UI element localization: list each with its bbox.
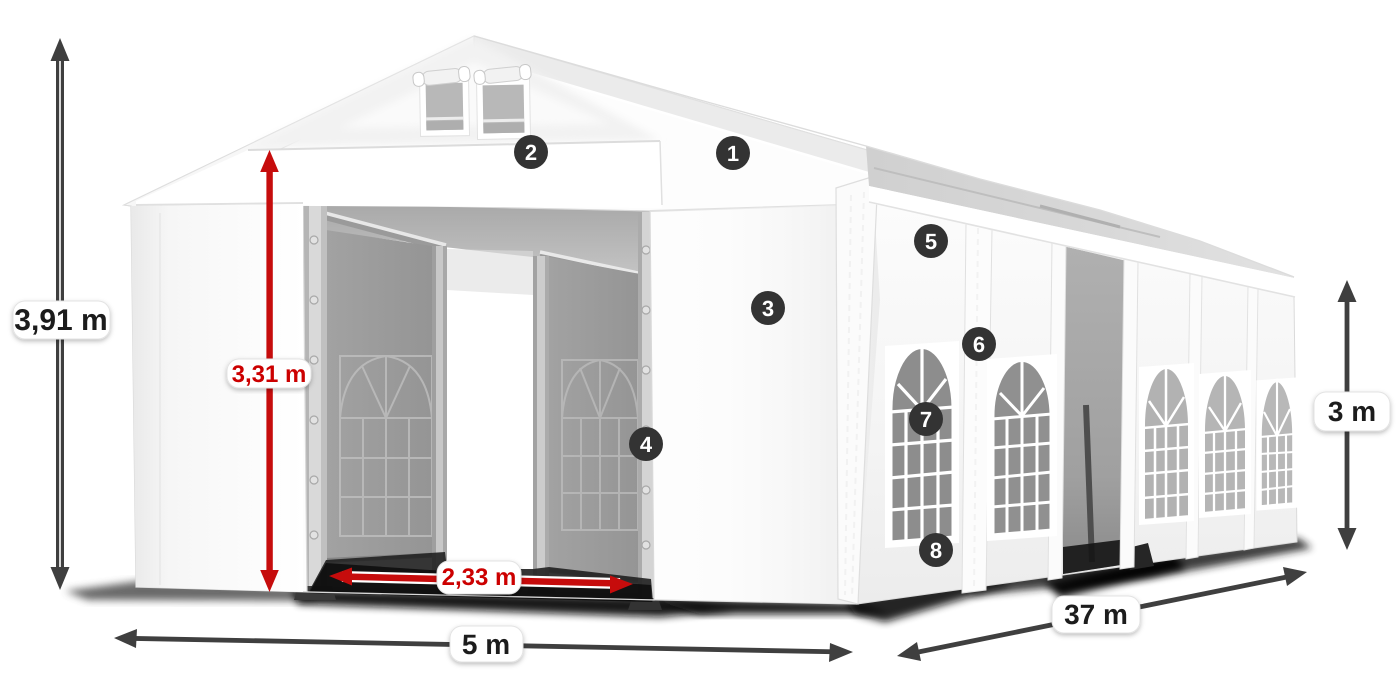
- svg-text:37 m: 37 m: [1064, 599, 1128, 630]
- svg-text:7: 7: [920, 407, 932, 432]
- svg-text:3: 3: [762, 296, 774, 321]
- svg-text:3,91 m: 3,91 m: [14, 304, 107, 337]
- svg-text:3 m: 3 m: [1328, 396, 1376, 427]
- svg-text:3,31 m: 3,31 m: [232, 361, 307, 388]
- svg-text:8: 8: [930, 538, 942, 563]
- svg-text:6: 6: [973, 332, 985, 357]
- svg-text:4: 4: [640, 432, 653, 457]
- svg-text:1: 1: [727, 141, 739, 166]
- svg-text:2: 2: [525, 140, 537, 165]
- svg-text:2,33 m: 2,33 m: [442, 564, 517, 591]
- svg-text:5: 5: [925, 229, 937, 254]
- svg-text:5 m: 5 m: [462, 629, 510, 660]
